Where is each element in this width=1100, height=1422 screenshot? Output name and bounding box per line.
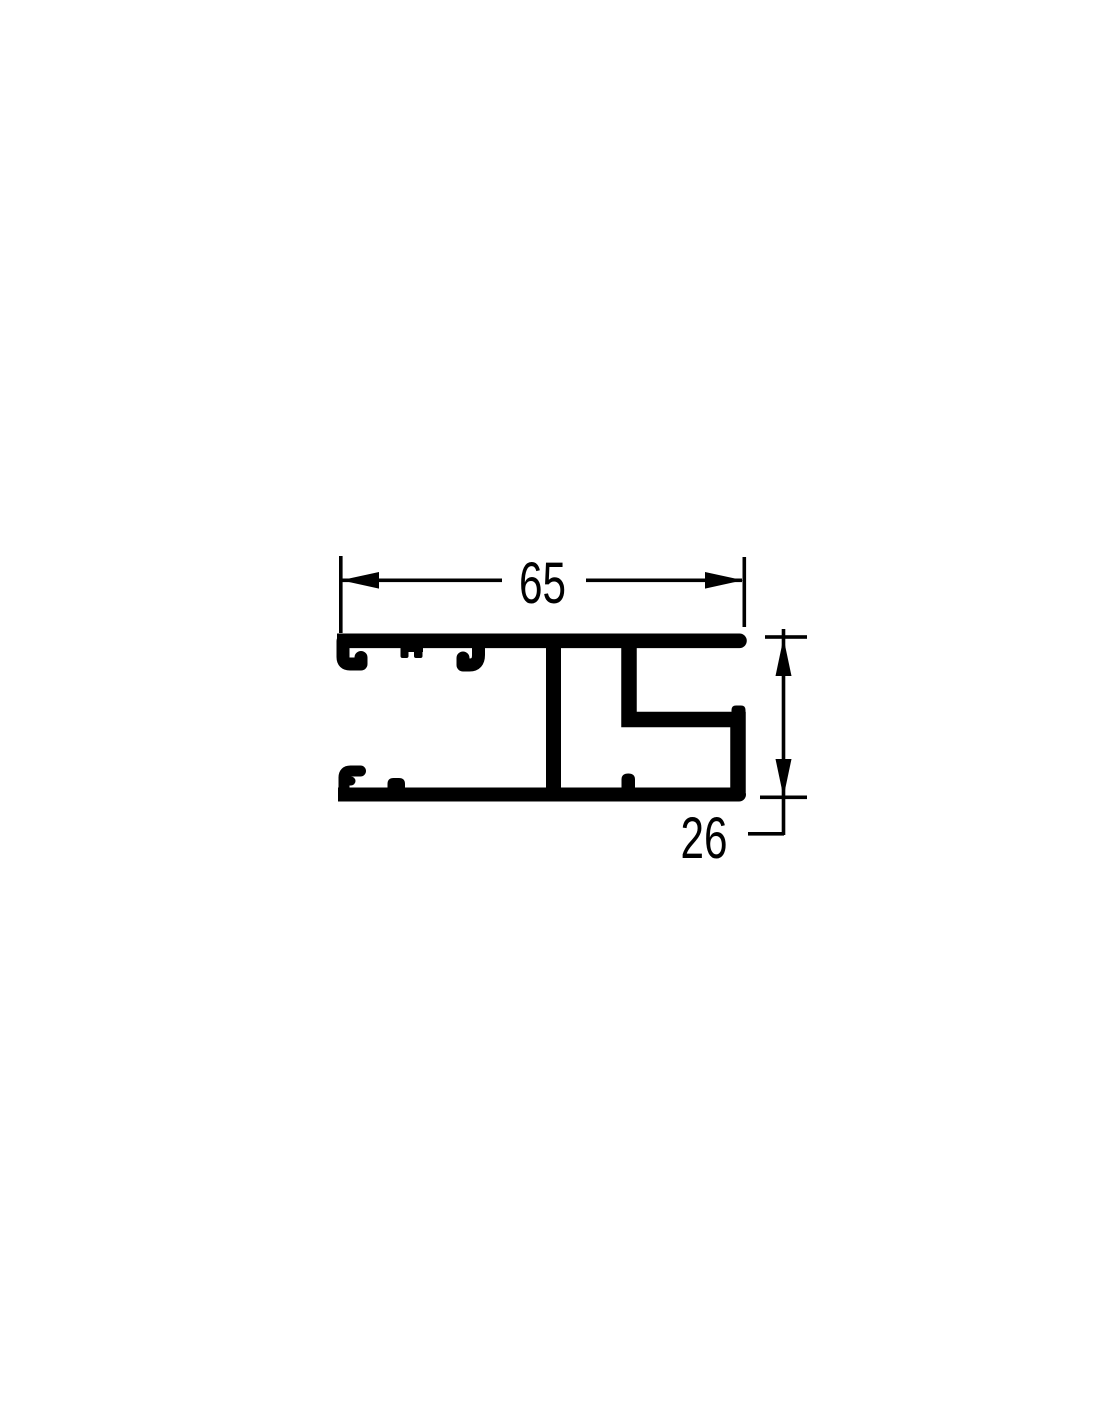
screw-slot-tooth-left xyxy=(401,648,409,658)
width-dim-label: 65 xyxy=(519,551,566,616)
height-dim-arrow-down xyxy=(776,759,792,797)
height-dim-leader xyxy=(748,832,784,836)
ink-layer: 65 26 xyxy=(337,551,807,871)
profile-walls xyxy=(343,641,738,792)
drawing-canvas: 65 26 xyxy=(0,0,1100,1422)
screw-boss-right xyxy=(622,774,636,790)
width-dim-arrow-left xyxy=(341,572,379,589)
profile-top-flange xyxy=(337,634,747,649)
width-dimension: 65 xyxy=(339,551,746,633)
height-dim-label: 26 xyxy=(681,806,728,871)
screw-boss-left xyxy=(388,778,406,789)
profile-bottom-flange xyxy=(338,788,746,802)
width-extension-line-left xyxy=(339,556,343,633)
profile-technical-drawing: 65 26 xyxy=(0,0,1100,1422)
step-web xyxy=(629,641,738,792)
height-dim-arrow-up xyxy=(776,638,792,676)
width-dim-arrow-right xyxy=(705,572,743,589)
width-extension-line-right xyxy=(743,557,747,627)
height-tick-top xyxy=(765,635,807,639)
screw-slot-tooth-right xyxy=(414,648,423,658)
